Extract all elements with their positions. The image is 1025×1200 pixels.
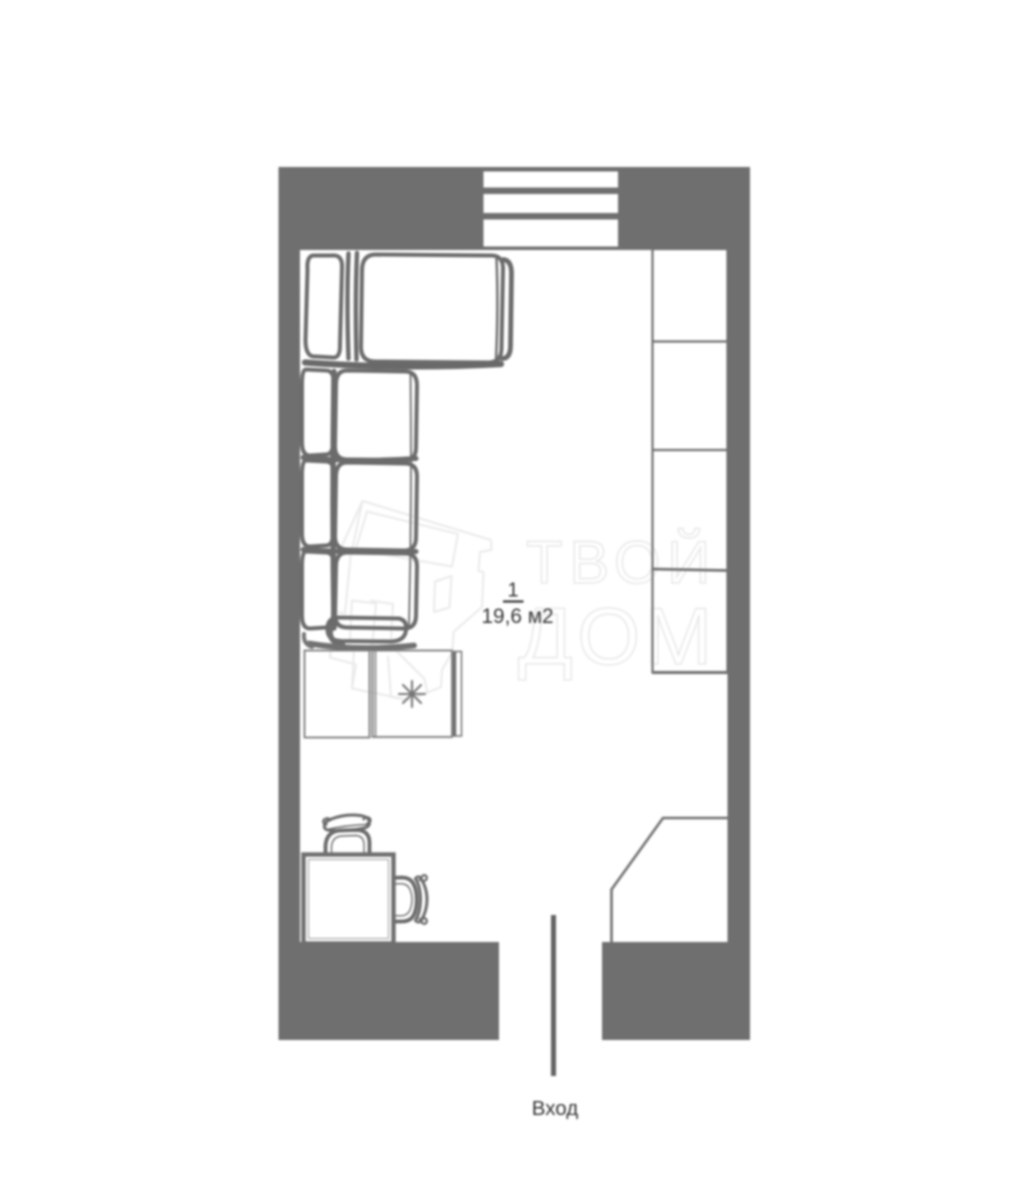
svg-text:ТВОЙ: ТВОЙ [526, 529, 717, 596]
svg-text:Вход: Вход [532, 1097, 578, 1120]
svg-text:ДОМ: ДОМ [518, 592, 717, 682]
svg-text:1: 1 [507, 580, 518, 602]
